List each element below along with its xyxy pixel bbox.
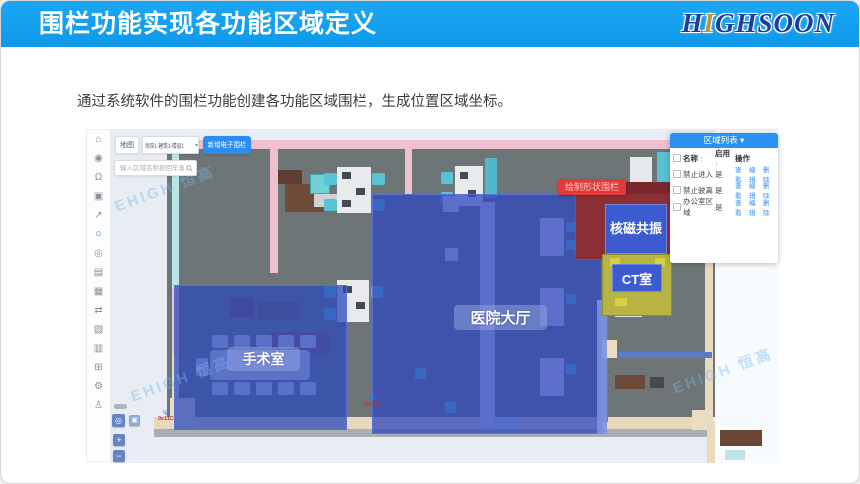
furniture — [460, 172, 468, 179]
furniture — [441, 172, 453, 184]
col-ops: 操作 — [735, 153, 775, 164]
search-input[interactable] — [118, 160, 186, 176]
zone-label-lobby: 医院大厅 — [454, 305, 547, 330]
locate-button[interactable]: ◎ — [112, 414, 125, 427]
row-ops: 查看编辑删除 — [735, 197, 775, 217]
image-icon[interactable]: ▧ — [87, 320, 110, 339]
region-panel-header[interactable]: 区域列表 ▾ — [670, 133, 778, 148]
zone-edge-strip — [597, 300, 607, 434]
region-name: 禁止驶离 — [683, 185, 715, 196]
app-screenshot: ⌂ ◉ Ω ▣ ↗ ○ ◎ ▤ ▦ ⇄ ▧ ▥ ⊞ ⚙ ♙ — [86, 129, 778, 462]
region-list-panel: 区域列表 ▾ 名称 ↕ 启用 ↕ 操作 禁止进入 是 查看编辑删除 禁止驶离 是… — [670, 133, 778, 263]
send-icon[interactable]: ↗ — [87, 206, 110, 225]
zone-label-ct: CT室 — [612, 264, 662, 292]
zone-text: 手术室 — [243, 349, 285, 369]
furniture — [278, 170, 302, 184]
table-row: 办公室区域 是 查看编辑删除 — [670, 196, 778, 212]
add-fence-button[interactable]: 新增电子围栏 — [203, 136, 251, 154]
wall — [405, 142, 412, 194]
wall — [270, 149, 278, 273]
furniture — [342, 200, 351, 207]
furniture — [372, 173, 385, 185]
furniture — [725, 450, 745, 460]
region-enabled: 是 — [715, 169, 735, 180]
furniture — [324, 199, 337, 211]
add-fence-label: 新增电子围栏 — [208, 140, 247, 150]
region-name: 禁止进入 — [683, 169, 715, 180]
select-all-checkbox[interactable] — [673, 154, 681, 162]
region-name: 办公室区域 — [683, 196, 715, 218]
calendar-icon[interactable]: ▦ — [87, 282, 110, 301]
gear-icon[interactable]: ⚙ — [87, 377, 110, 396]
zone-text: 医院大厅 — [470, 307, 530, 328]
furniture — [356, 188, 365, 195]
minus-icon: − — [116, 451, 121, 461]
building-icon[interactable]: ▥ — [87, 339, 110, 358]
locate-icon: ◎ — [115, 416, 122, 425]
row-checkbox[interactable] — [673, 186, 681, 194]
logo-part: GHSOON — [715, 8, 835, 38]
region-enabled: 是 — [715, 202, 735, 213]
furniture — [356, 302, 365, 309]
zoom-out-button[interactable]: − — [113, 450, 125, 462]
zone-text: CT室 — [622, 269, 652, 288]
sort-icon[interactable]: ↕ — [715, 162, 718, 168]
logo-part-gold: I — [703, 8, 715, 38]
delete-link[interactable]: 删除 — [763, 197, 775, 217]
furniture — [720, 430, 762, 446]
logo-part: H — [681, 8, 703, 38]
scale-pill[interactable] — [114, 404, 127, 409]
page-title: 围栏功能实现各功能区域定义 — [39, 1, 377, 47]
location-icon[interactable]: ◎ — [87, 244, 110, 263]
map-type-text: 地图 — [120, 140, 134, 150]
user-icon[interactable]: ♙ — [87, 396, 110, 415]
route-icon[interactable]: ⇄ — [87, 301, 110, 320]
col-name: 名称 ↕ — [683, 153, 715, 164]
body-text: 通过系统软件的围栏功能创建各功能区域围栏，生成位置区域坐标。 — [77, 90, 512, 111]
bell-icon[interactable]: Ω — [87, 168, 110, 187]
layers-icon: ▣ — [131, 417, 138, 424]
row-checkbox[interactable] — [673, 170, 681, 178]
zone-label-mri: 核磁共振 — [605, 204, 667, 254]
zoom-in-button[interactable]: + — [113, 434, 125, 446]
floor-selector-value: 场馆1-建筑1-楼层1 — [145, 141, 184, 150]
layers-button[interactable]: ▣ — [129, 415, 140, 426]
app-sidebar: ⌂ ◉ Ω ▣ ↗ ○ ◎ ▤ ▦ ⇄ ▧ ▥ ⊞ ⚙ ♙ — [87, 130, 111, 461]
col-enabled-text: 启用 — [715, 149, 730, 158]
slide-header: 围栏功能实现各功能区域定义 HIGHSOON — [1, 1, 859, 47]
region-panel-title: 区域列表 — [704, 135, 738, 145]
chevron-down-icon: ▾ — [195, 142, 198, 149]
furniture — [650, 377, 664, 388]
sort-icon[interactable]: ↕ — [700, 157, 703, 163]
furniture — [324, 173, 337, 185]
list-icon[interactable]: ▤ — [87, 263, 110, 282]
zone-label-operating-room: 手术室 — [227, 347, 300, 371]
furniture — [485, 158, 497, 198]
region-table-header: 名称 ↕ 启用 ↕ 操作 — [670, 148, 778, 164]
fence-icon[interactable]: ○ — [87, 225, 110, 244]
plus-icon: + — [116, 435, 121, 445]
draw-fence-tooltip: 绘制形状围栏 — [558, 179, 626, 195]
region-enabled: 是 — [715, 185, 735, 196]
floor-selector[interactable]: 场馆1-建筑1-楼层1 ▾ — [142, 136, 199, 154]
tooltip-text: 绘制形状围栏 — [565, 182, 619, 192]
search-box — [114, 160, 197, 176]
furniture — [615, 375, 645, 389]
chevron-down-icon: ▾ — [740, 135, 744, 145]
eye-icon[interactable]: ◉ — [87, 149, 110, 168]
highsoon-logo: HIGHSOON — [681, 8, 835, 39]
table-row: 禁止驶离 是 查看编辑删除 — [670, 180, 778, 196]
furniture — [342, 172, 351, 179]
row-checkbox[interactable] — [673, 203, 681, 211]
camera-icon[interactable]: ▣ — [87, 187, 110, 206]
layout-icon[interactable]: ⊞ — [87, 358, 110, 377]
home-icon[interactable]: ⌂ — [87, 130, 110, 149]
wall — [707, 422, 715, 463]
col-enabled: 启用 ↕ — [715, 148, 735, 168]
search-icon — [186, 165, 193, 172]
col-name-text: 名称 — [683, 154, 698, 163]
map-type-label[interactable]: 地图 — [115, 136, 139, 154]
edit-link[interactable]: 编辑 — [749, 197, 761, 217]
zone-ct-accent — [615, 298, 627, 306]
slide: 围栏功能实现各功能区域定义 HIGHSOON 通过系统软件的围栏功能创建各功能区… — [0, 0, 860, 484]
zone-text: 核磁共振 — [610, 222, 662, 237]
wall — [602, 352, 712, 358]
view-link[interactable]: 查看 — [735, 197, 747, 217]
